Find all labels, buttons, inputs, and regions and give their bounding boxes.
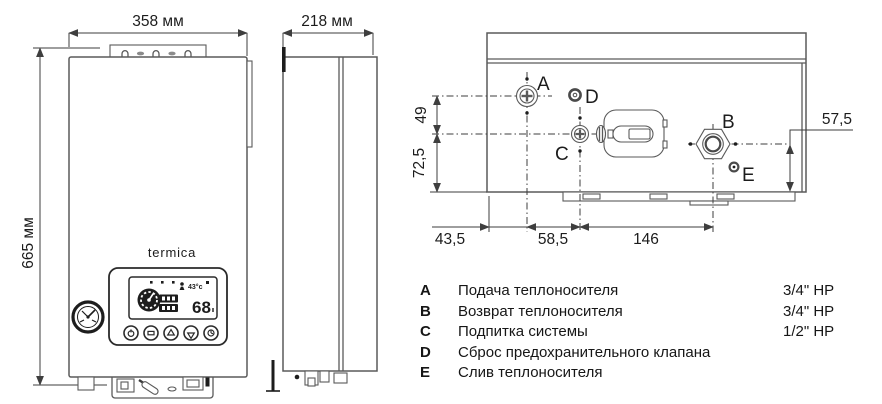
bottom-view: A D C	[411, 33, 853, 248]
legend-size: 1/2" НР	[783, 323, 834, 340]
legend-key: B	[420, 303, 458, 320]
pump-housing	[597, 110, 668, 157]
port-e-drain	[730, 163, 739, 172]
bottom-mounting-plate	[563, 192, 795, 205]
dial-gauge-icon	[138, 289, 161, 312]
legend-row-a: A Подача теплоносителя 3/4" НР	[420, 282, 850, 303]
boiler-dimension-drawing: 358 мм 665 мм termica	[0, 0, 882, 404]
dim-49-label: 49	[413, 106, 430, 123]
status-dot	[161, 281, 164, 284]
wall-bracket-top	[282, 47, 286, 72]
side-cabinet-body	[283, 57, 377, 371]
legend-key: D	[420, 344, 458, 361]
legend-key: A	[420, 282, 458, 299]
brand-logo: termica	[148, 245, 196, 260]
dim-43-5-label: 43,5	[435, 231, 465, 248]
legend-row-b: B Возврат теплоносителя 3/4" НР	[420, 303, 850, 324]
port-d-label: D	[585, 87, 599, 108]
port-c-label: C	[555, 144, 569, 165]
legend-row-e: E Слив теплоносителя	[420, 364, 850, 385]
status-dot	[172, 281, 175, 284]
port-b-label: B	[722, 112, 735, 133]
dim-146-label: 146	[633, 231, 659, 248]
display-secondary-value: 43°c	[188, 283, 203, 291]
legend-desc: Подача теплоносителя	[458, 282, 783, 299]
ports-legend: A Подача теплоносителя 3/4" НР B Возврат…	[420, 282, 850, 385]
legend-row-c: C Подпитка системы 1/2" НР	[420, 323, 850, 344]
legend-size: 3/4" НР	[783, 282, 834, 299]
legend-row-d: D Сброс предохранительного клапана	[420, 344, 850, 365]
status-dot	[206, 281, 209, 284]
side-view: 218 мм	[266, 13, 377, 391]
dim-57-5-label: 57,5	[822, 111, 852, 128]
port-d-safety-valve	[569, 89, 580, 100]
legend-desc: Подпитка системы	[458, 323, 783, 340]
legend-size: 3/4" НР	[783, 303, 834, 320]
dim-72-5-label: 72,5	[411, 148, 428, 178]
legend-desc: Возврат теплоносителя	[458, 303, 783, 320]
dim-58-5-label: 58,5	[538, 231, 568, 248]
left-dim-chain: 49 72,5	[411, 96, 487, 192]
legend-desc: Слив теплоносителя	[458, 364, 783, 381]
front-bottom-fittings	[78, 377, 213, 398]
side-depth-label: 218 мм	[301, 13, 352, 30]
legend-desc: Сброс предохранительного клапана	[458, 344, 783, 361]
legend-key: E	[420, 364, 458, 381]
front-height-label: 665 мм	[20, 217, 37, 268]
display-temperature-value: 68	[192, 298, 211, 317]
port-e-label: E	[742, 165, 755, 186]
legend-key: C	[420, 323, 458, 340]
front-width-label: 358 мм	[132, 13, 183, 30]
bottom-dim-chain: 43,5 58,5 146	[432, 196, 713, 248]
status-dot	[150, 281, 153, 284]
pressure-gauge	[73, 302, 103, 332]
port-a-label: A	[537, 74, 550, 95]
side-flange-strip	[247, 61, 252, 147]
front-view: 358 мм 665 мм termica	[20, 13, 252, 398]
